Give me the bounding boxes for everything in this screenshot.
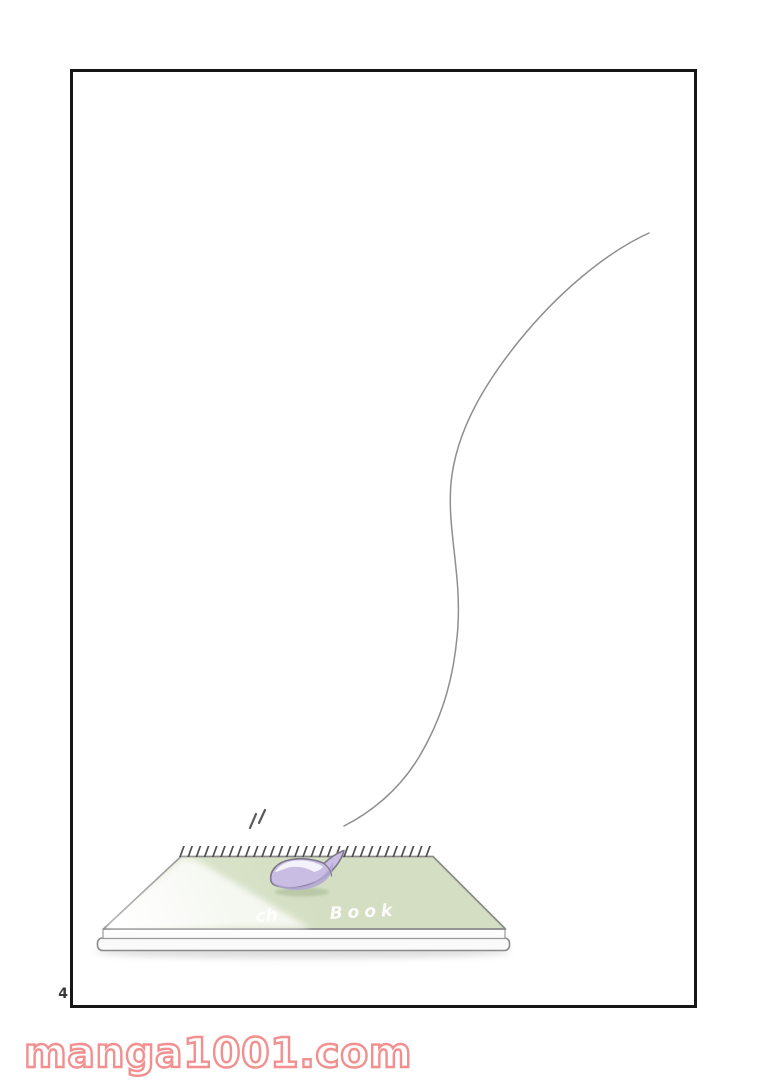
page-number: 4	[52, 986, 68, 1002]
sketchbook-base-board	[98, 938, 510, 951]
watermark-text: manga1001.com	[24, 1029, 412, 1077]
motion-tick-left	[250, 814, 256, 828]
cover-title-fragment-1: ch	[255, 905, 279, 926]
cover-title-fragment-2: Book	[329, 900, 398, 924]
manga-page: ch Book 4 manga1001.com	[0, 0, 762, 1080]
watermark: manga1001.com	[12, 1024, 472, 1080]
sketchbook-page-stack	[103, 929, 505, 939]
string-curve-line	[344, 233, 649, 826]
sketchbook: ch Book	[95, 851, 511, 959]
artwork-canvas: ch Book	[0, 0, 762, 1080]
motion-tick-right	[259, 810, 265, 823]
